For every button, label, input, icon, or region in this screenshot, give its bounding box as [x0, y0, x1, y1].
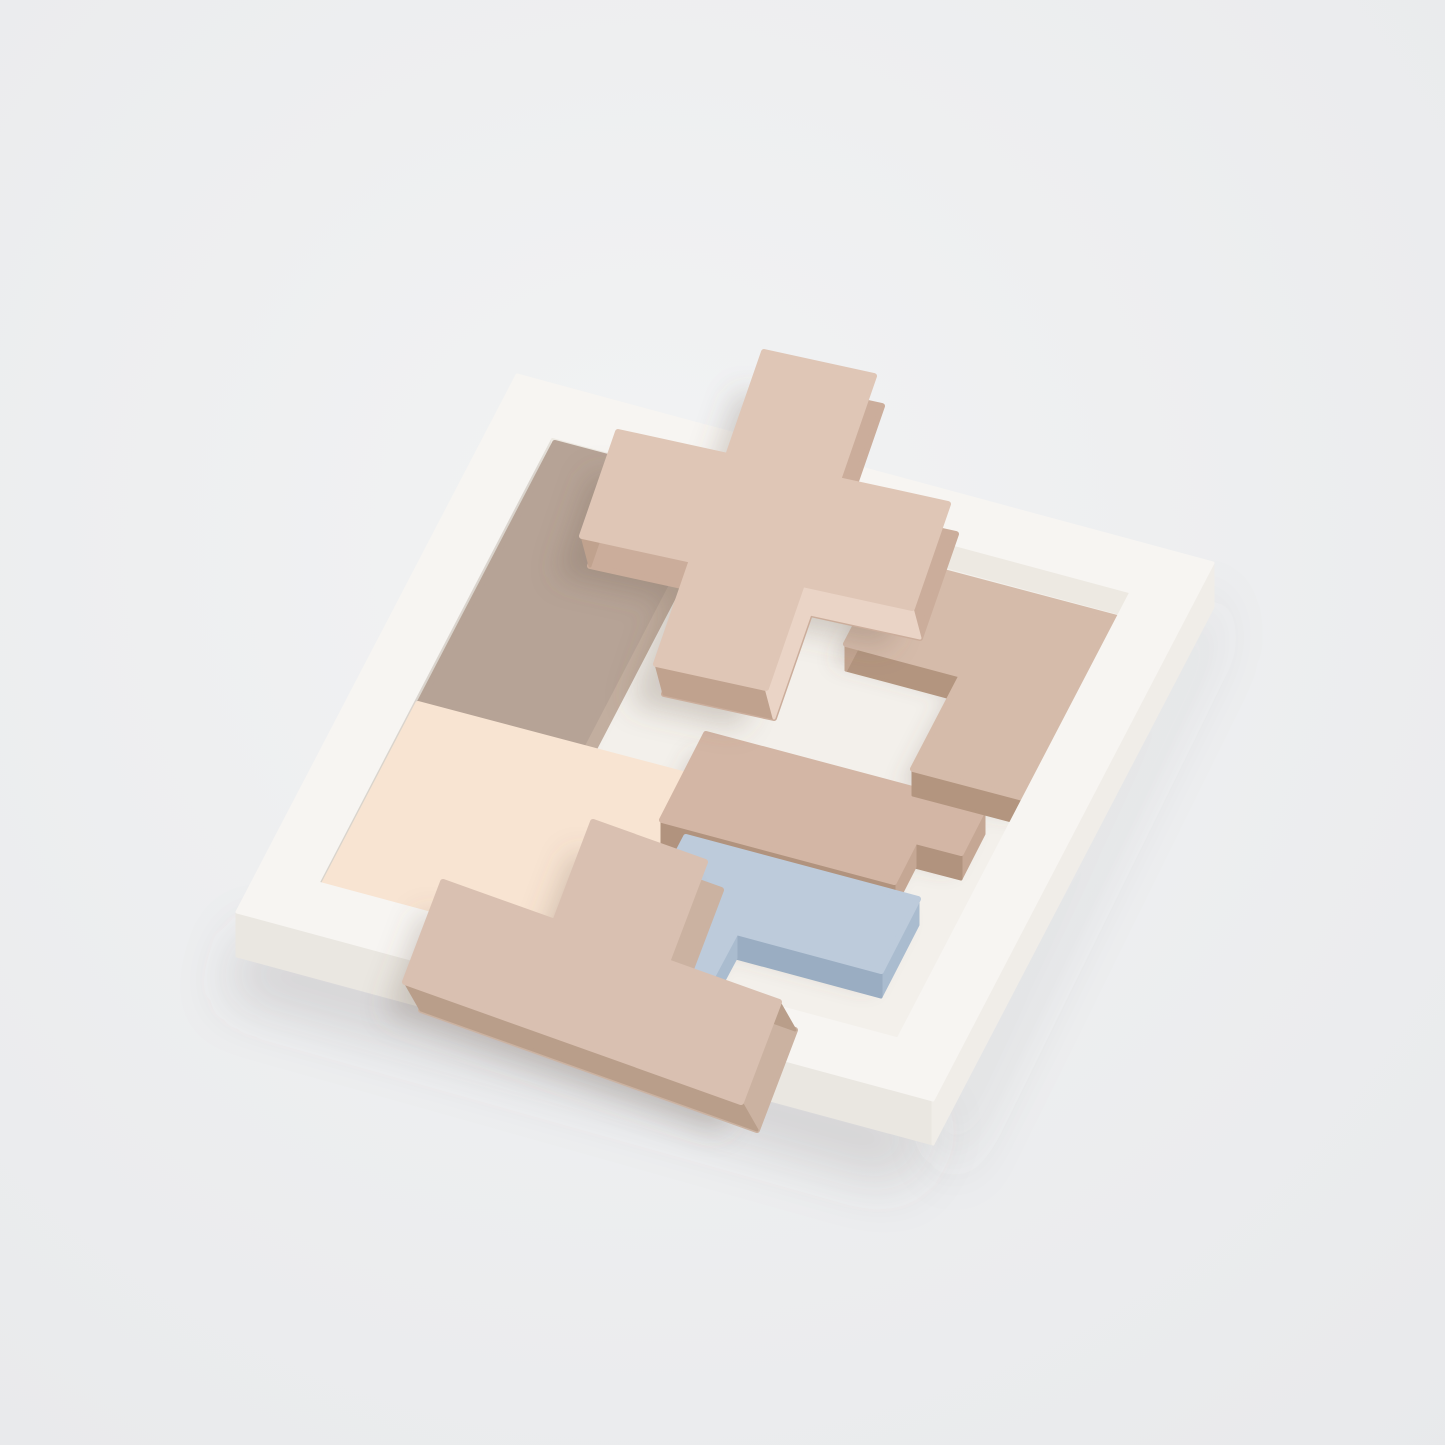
- product-photo: [0, 0, 1445, 1445]
- puzzle-scene: [0, 0, 1445, 1445]
